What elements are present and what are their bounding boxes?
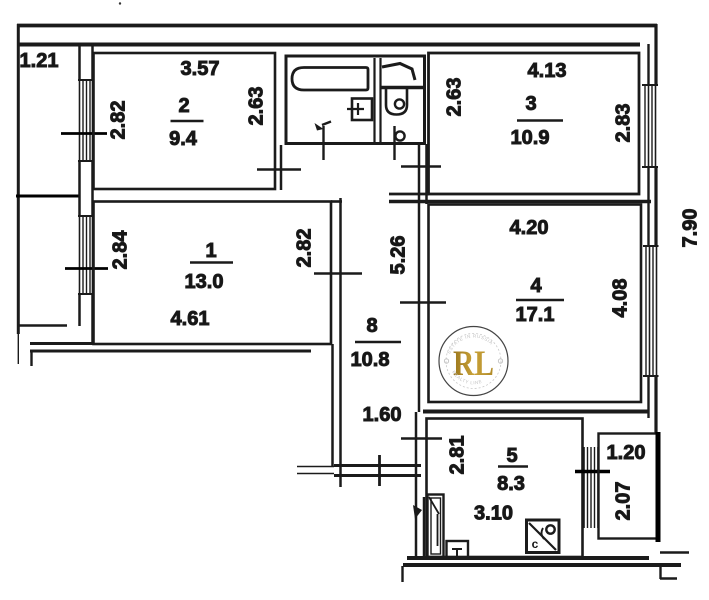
svg-text:2.63: 2.63	[443, 78, 465, 117]
svg-text:2.84: 2.84	[109, 230, 131, 270]
svg-text:2: 2	[178, 95, 189, 117]
svg-text:2.82: 2.82	[107, 101, 129, 140]
svg-text:c: c	[532, 537, 539, 551]
svg-text:1: 1	[205, 240, 216, 262]
svg-text:8.3: 8.3	[497, 473, 525, 495]
svg-text:1.60: 1.60	[363, 404, 402, 426]
svg-text:9.4: 9.4	[169, 128, 198, 150]
svg-text:5: 5	[506, 445, 517, 467]
svg-text:3.10: 3.10	[474, 503, 513, 525]
svg-text:4.61: 4.61	[171, 308, 210, 330]
svg-text:10.8: 10.8	[351, 349, 390, 371]
svg-text:2.81: 2.81	[446, 436, 468, 475]
svg-text:13.0: 13.0	[185, 271, 224, 293]
svg-text:17.1: 17.1	[516, 304, 555, 326]
svg-text:2.63: 2.63	[245, 87, 267, 126]
svg-text:3: 3	[525, 93, 536, 115]
svg-text:4.20: 4.20	[510, 217, 549, 239]
svg-text:2.07: 2.07	[612, 482, 634, 521]
svg-text:2.83: 2.83	[612, 104, 634, 143]
svg-text:4: 4	[530, 275, 542, 297]
svg-text:8: 8	[366, 315, 377, 337]
svg-text:3.57: 3.57	[181, 58, 220, 80]
svg-text:4.08: 4.08	[609, 279, 631, 318]
svg-text:1.20: 1.20	[607, 442, 646, 464]
svg-text:1.21: 1.21	[20, 50, 59, 72]
svg-text:7.90: 7.90	[679, 209, 701, 248]
svg-text:5.26: 5.26	[387, 236, 409, 275]
svg-text:2.82: 2.82	[293, 229, 315, 268]
svg-text:10.9: 10.9	[511, 127, 550, 149]
svg-text:4.13: 4.13	[528, 60, 567, 82]
